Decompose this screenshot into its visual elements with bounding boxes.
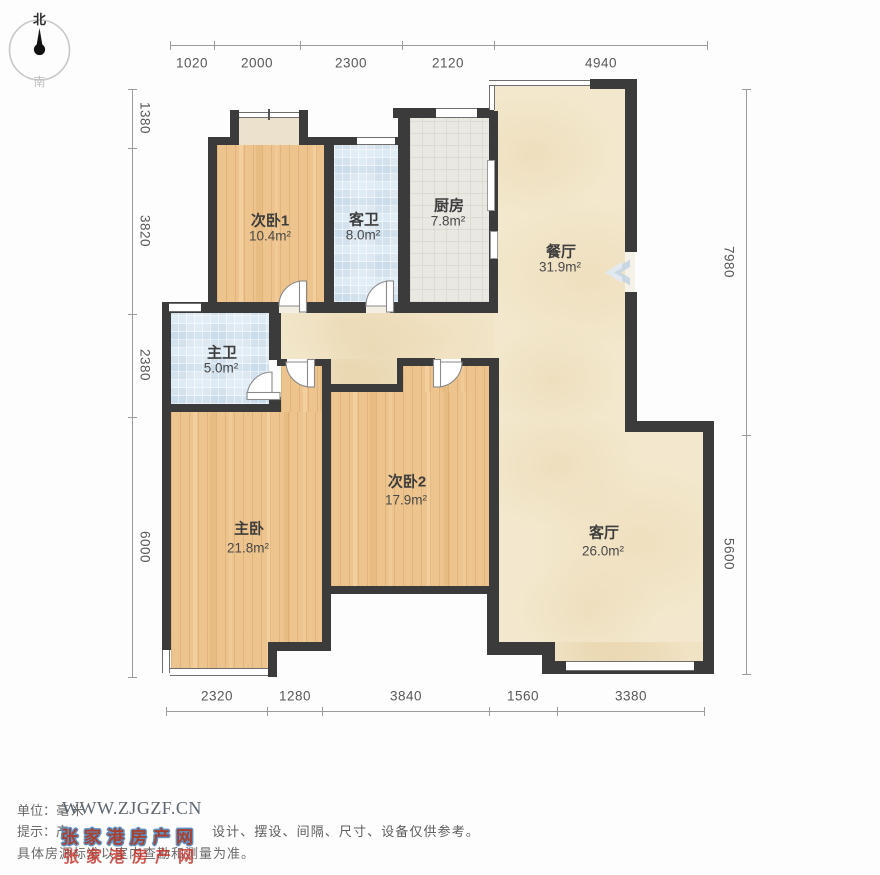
svg-text:北: 北 <box>33 12 46 27</box>
svg-text:南: 南 <box>33 74 45 89</box>
